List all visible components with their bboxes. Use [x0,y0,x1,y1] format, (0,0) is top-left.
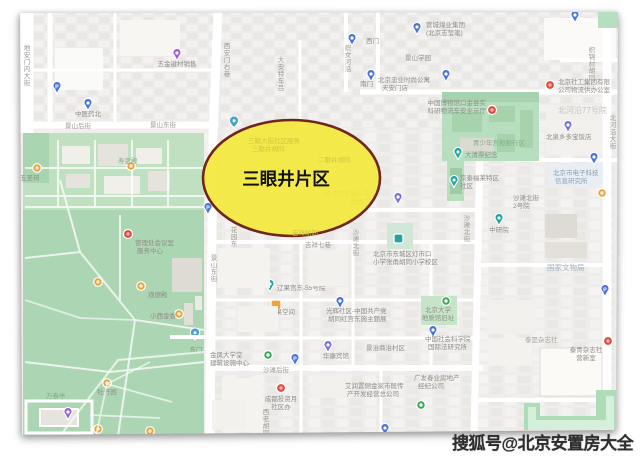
svg-text:五圣祠: 五圣祠 [20,173,40,182]
svg-text:沙滩后街: 沙滩后街 [263,365,290,374]
svg-text:公司物流供办公室: 公司物流供办公室 [558,85,611,94]
svg-text:中医药北: 中医药北 [75,109,102,118]
svg-text:P: P [206,205,210,211]
svg-text:三眼井胡同: 三眼井胡同 [252,144,285,153]
svg-text:中研院: 中研院 [489,225,509,234]
svg-text:泰青杂志社: 泰青杂志社 [570,345,603,354]
svg-text:北河沿77号院: 北河沿77号院 [558,105,607,115]
svg-text:西安门右巷: 西安门右巷 [224,42,231,78]
svg-text:北京忠业时尚公寓: 北京忠业时尚公寓 [378,75,430,84]
svg-text:北京大学: 北京大学 [425,305,452,314]
svg-text:中国博物馆口金县实: 中国博物馆口金县实 [428,98,487,107]
svg-text:国际法研究所: 国际法研究所 [428,342,468,351]
svg-text:三眼大街社区服务: 三眼大街社区服务 [248,136,301,145]
svg-text:景治商治村区: 景治商治村区 [366,343,406,352]
svg-text:北京社工集团有限: 北京社工集团有限 [558,77,611,86]
svg-text:北泉乡多宝饭店: 北泉乡多宝饭店 [546,132,592,141]
svg-text:沙滩北街: 沙滩北街 [353,229,360,257]
svg-text:西老胡同: 西老胡同 [263,408,270,437]
svg-text:景山东街: 景山东街 [150,120,177,129]
svg-text:天安门店: 天安门店 [382,83,409,92]
svg-text:景山后街: 景山后街 [65,121,92,130]
svg-text:五金键材销售: 五金键材销售 [158,59,197,68]
svg-text:沙滩北街: 沙滩北街 [464,215,471,243]
svg-text:成都投资月: 成都投资月 [265,394,298,403]
svg-text:织女河沿: 织女河沿 [345,43,352,73]
svg-text:科研物流车安全示厅: 科研物流车安全示厅 [428,106,487,115]
svg-text:建筑设施中心: 建筑设施中心 [210,358,250,367]
svg-text:万春亭: 万春亭 [46,391,66,400]
svg-text:京泰福莱特区: 京泰福莱特区 [460,173,500,182]
svg-text:胡同红宫东施主题展: 胡同红宫东施主题展 [328,314,387,323]
svg-text:北河沿大街: 北河沿大街 [610,114,617,150]
svg-text:(北京志莹笔): (北京志莹笔) [426,28,463,37]
svg-text:地安门内大街: 地安门内大街 [24,43,31,87]
svg-text:小西金香: 小西金香 [150,311,177,320]
svg-text:吉祥七巷: 吉祥七巷 [305,240,332,249]
svg-text:织锦村胡同: 织锦村胡同 [589,45,596,82]
svg-text:管城煤业集团: 管城煤业集团 [426,20,465,29]
svg-text:景山学园: 景山学园 [405,53,431,62]
svg-text:北京市电子科技: 北京市电子科技 [553,168,599,177]
svg-text:沙滩北街: 沙滩北街 [513,193,540,202]
svg-text:大安特车吕: 大安特车吕 [278,55,285,92]
svg-text:泰是杂志社: 泰是杂志社 [525,335,558,344]
svg-text:地质馆旧址: 地质馆旧址 [422,313,455,322]
svg-text:西门: 西门 [366,36,379,45]
svg-text:信息研究所: 信息研究所 [555,176,588,185]
svg-text:国家文物局: 国家文物局 [547,262,585,272]
svg-text:二眼井胡同: 二眼井胡同 [318,155,351,164]
svg-text:营新室: 营新室 [576,353,596,362]
svg-text:小学张甬胡同小学校区: 小学张甬胡同小学校区 [373,257,439,266]
svg-text:P: P [293,356,297,362]
svg-text:寿皇殿: 寿皇殿 [118,156,138,165]
svg-text:牡丹园: 牡丹园 [97,387,117,396]
svg-text:P: P [55,84,59,90]
svg-text:大清票纪念: 大清票纪念 [465,150,498,159]
svg-text:产开发经营总公司: 产开发经营总公司 [347,389,399,398]
svg-text:青少年宫殿银行区: 青少年宫殿银行区 [473,138,526,147]
svg-text:北京市东城区灯市口: 北京市东城区灯市口 [373,249,432,258]
svg-text:艾润置侧金家市既传: 艾润置侧金家市既传 [345,381,404,390]
svg-text:三眼井片区: 三眼井片区 [242,169,330,189]
svg-text:景山东街: 景山东街 [211,254,218,283]
svg-text:2号院: 2号院 [513,201,530,210]
svg-text:南门: 南门 [360,79,373,88]
svg-text:服务中心: 服务中心 [137,246,164,255]
svg-text:中国社会科学院: 中国社会科学院 [425,334,471,343]
svg-text:吉祥胡同: 吉祥胡同 [292,228,318,237]
svg-text:观德殿: 观德殿 [148,290,168,299]
svg-text:社区办: 社区办 [271,402,291,411]
svg-text:社区: 社区 [460,181,474,190]
svg-text:光辉社区-中国共产党: 光辉社区-中国共产党 [326,306,387,315]
svg-text:P: P [603,287,607,293]
svg-text:金凤大学堂: 金凤大学堂 [210,350,243,359]
svg-text:广发春业房地产: 广发春业房地产 [414,373,460,382]
svg-text:管理处会议室: 管理处会议室 [135,238,175,247]
svg-text:华康宾馆: 华康宾馆 [323,351,350,360]
svg-text:经纪公司: 经纪公司 [418,381,444,390]
